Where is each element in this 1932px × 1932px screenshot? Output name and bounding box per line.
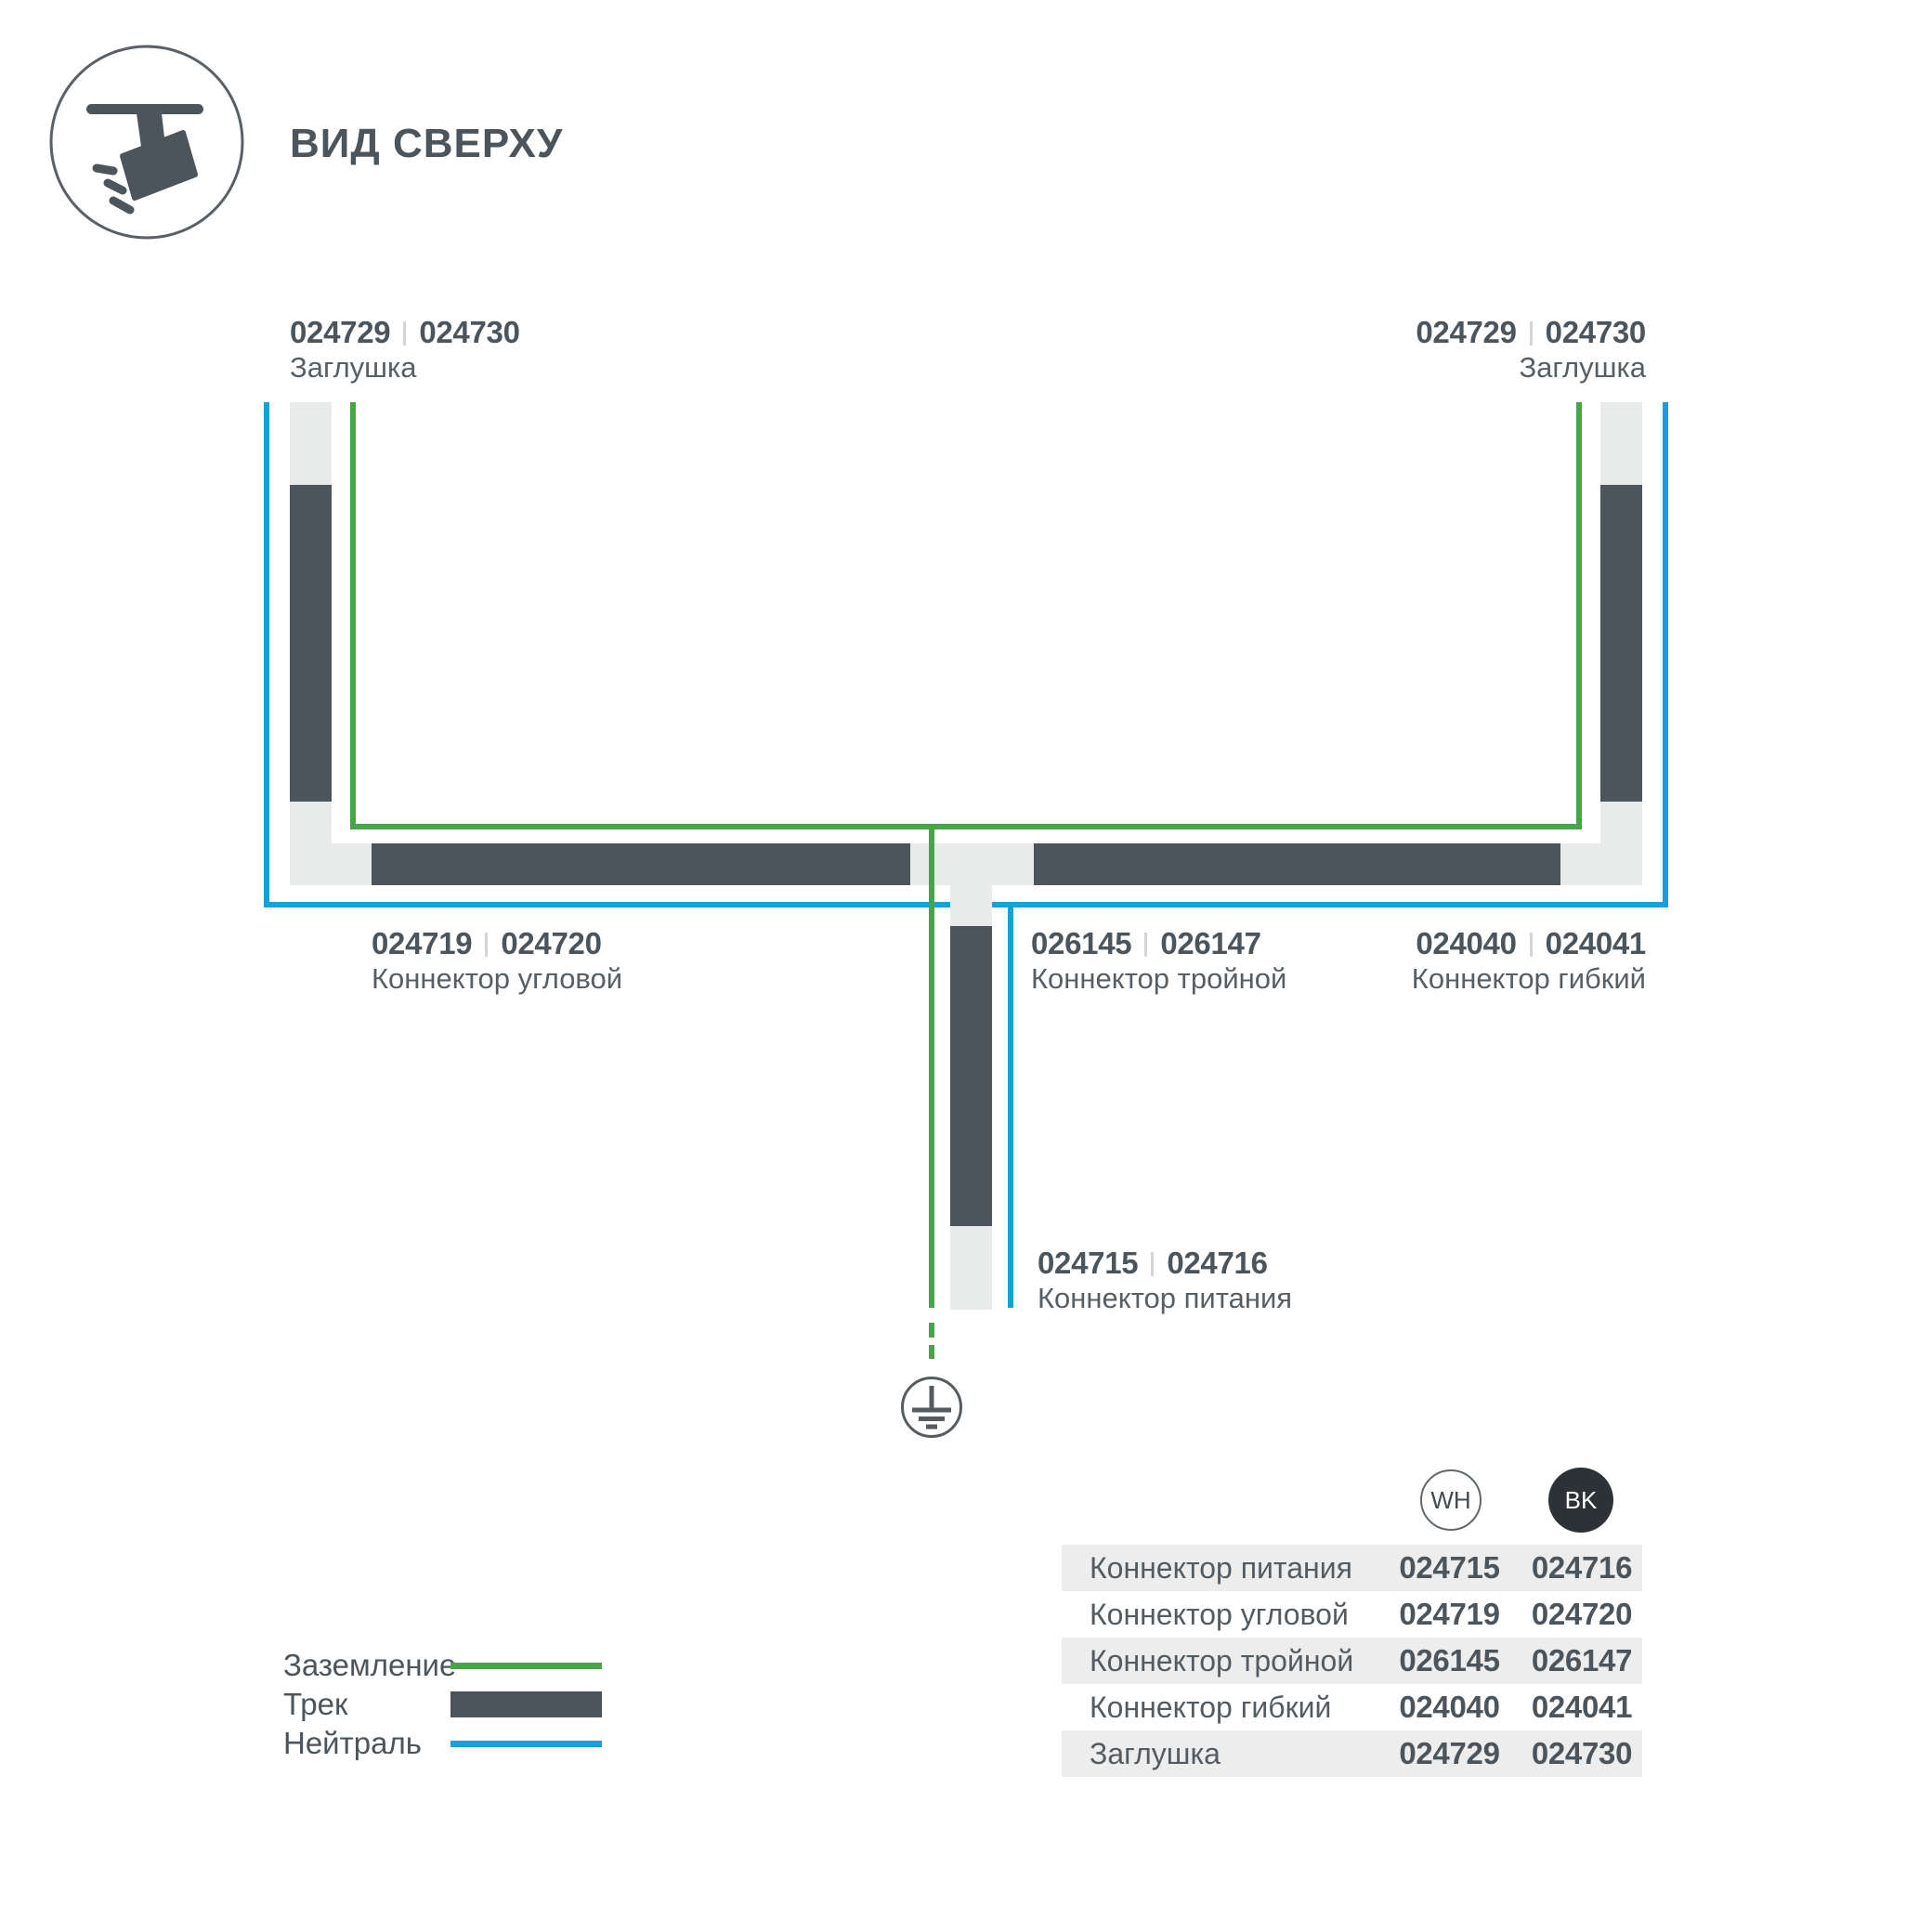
table-row: Коннектор угловой 024719 024720 [1062,1591,1642,1638]
label-triple-connector: 026145026147 Коннектор тройной [1031,925,1286,996]
column-badge-black: BK [1548,1468,1613,1533]
label-flexible-connector: 024040024041 Коннектор гибкий [1412,925,1646,996]
t-connector-stem [950,885,992,926]
code-divider [485,933,488,957]
row-wh-code: 024040 [1377,1690,1521,1725]
green-ground-line-swatch [450,1663,602,1669]
track-drop-vertical [950,926,992,1226]
legend-item-neutral: Нейтраль [283,1724,602,1763]
power-connector-cap [950,1226,992,1310]
table-row: Коннектор гибкий 024040 024041 [1062,1684,1642,1730]
code-bk: 024730 [1546,315,1646,349]
row-label: Заглушка [1090,1737,1377,1771]
label-corner-connector: 024719024720 Коннектор угловой [372,925,622,996]
flex-connector-right-v [1600,802,1642,885]
code-bk: 024730 [419,315,519,349]
code-bk: 024041 [1546,926,1646,960]
top-view-diagram-page: ВИД СВЕРХУ 024729024730 Заглушка 0247290… [0,0,1932,1932]
code-wh: 024040 [1416,926,1516,960]
table-row: Заглушка 024729 024730 [1062,1730,1642,1777]
neutral-line-left-vertical [264,402,269,907]
code-wh: 026145 [1031,926,1131,960]
legend: Заземление Трек Нейтраль [283,1646,602,1763]
row-label: Коннектор угловой [1090,1598,1377,1632]
ground-line-drop-vertical [929,827,934,1308]
row-bk-code: 024716 [1521,1550,1642,1586]
code-divider [1530,933,1533,957]
part-name: Коннектор угловой [372,962,622,996]
track-horizontal-right [1034,843,1560,885]
code-divider [1144,933,1147,957]
ground-line-left-vertical [350,402,356,829]
legend-item-ground: Заземление [283,1646,602,1685]
legend-label: Трек [283,1687,450,1722]
blue-neutral-line-swatch [450,1741,602,1747]
row-wh-code: 024729 [1377,1736,1521,1771]
row-bk-code: 024041 [1521,1690,1642,1725]
code-divider [403,321,406,346]
table-row: Коннектор питания 024715 024716 [1062,1545,1642,1591]
track-spotlight-icon [49,45,244,240]
code-bk: 024716 [1167,1246,1267,1280]
row-wh-code: 024715 [1377,1550,1521,1586]
ground-line-top-horizontal [350,824,1582,829]
page-title: ВИД СВЕРХУ [290,121,563,167]
ground-line-right-vertical [1576,402,1582,829]
corner-connector-left-v [290,802,332,885]
earth-ground-icon [899,1375,964,1440]
row-bk-code: 026147 [1521,1643,1642,1678]
track-horizontal-left [372,843,910,885]
end-cap-left [290,402,332,485]
part-name: Коннектор тройной [1031,962,1286,996]
code-bk: 024720 [501,926,601,960]
row-label: Коннектор питания [1090,1551,1377,1586]
ground-line-dash-2 [929,1345,934,1359]
column-badge-white: WH [1420,1469,1482,1531]
ground-line-dash-1 [929,1323,934,1338]
row-label: Коннектор гибкий [1090,1690,1377,1725]
neutral-line-drop-vertical [1008,905,1013,1308]
part-name: Заглушка [290,351,520,385]
dark-track-bar-swatch [450,1691,602,1717]
code-divider [1530,321,1533,346]
code-bk: 026147 [1160,926,1260,960]
label-power-connector: 024715024716 Коннектор питания [1038,1245,1292,1315]
end-cap-right [1600,402,1642,485]
neutral-line-right-vertical [1663,402,1668,907]
article-table: Коннектор питания 024715 024716 Коннекто… [1062,1545,1642,1777]
row-wh-code: 024719 [1377,1597,1521,1632]
label-end-cap-left: 024729024730 Заглушка [290,314,520,385]
legend-label: Заземление [283,1648,450,1683]
code-wh: 024729 [290,315,390,349]
part-name: Заглушка [1416,351,1646,385]
track-left-vertical [290,485,332,802]
row-bk-code: 024730 [1521,1736,1642,1771]
part-name: Коннектор гибкий [1412,962,1646,996]
code-wh: 024719 [372,926,472,960]
row-wh-code: 026145 [1377,1643,1521,1678]
legend-item-track: Трек [283,1685,602,1724]
flex-connector-right-h [1560,843,1600,885]
code-divider [1151,1252,1154,1276]
part-name: Коннектор питания [1038,1282,1292,1315]
column-badge-label: BK [1565,1486,1598,1515]
legend-label: Нейтраль [283,1726,450,1761]
code-wh: 024729 [1416,315,1516,349]
column-badge-label: WH [1430,1486,1470,1515]
row-bk-code: 024720 [1521,1597,1642,1632]
code-wh: 024715 [1038,1246,1138,1280]
row-label: Коннектор тройной [1090,1644,1377,1678]
table-row: Коннектор тройной 026145 026147 [1062,1638,1642,1684]
label-end-cap-right: 024729024730 Заглушка [1416,314,1646,385]
corner-connector-left-h [332,843,372,885]
track-right-vertical [1600,485,1642,802]
